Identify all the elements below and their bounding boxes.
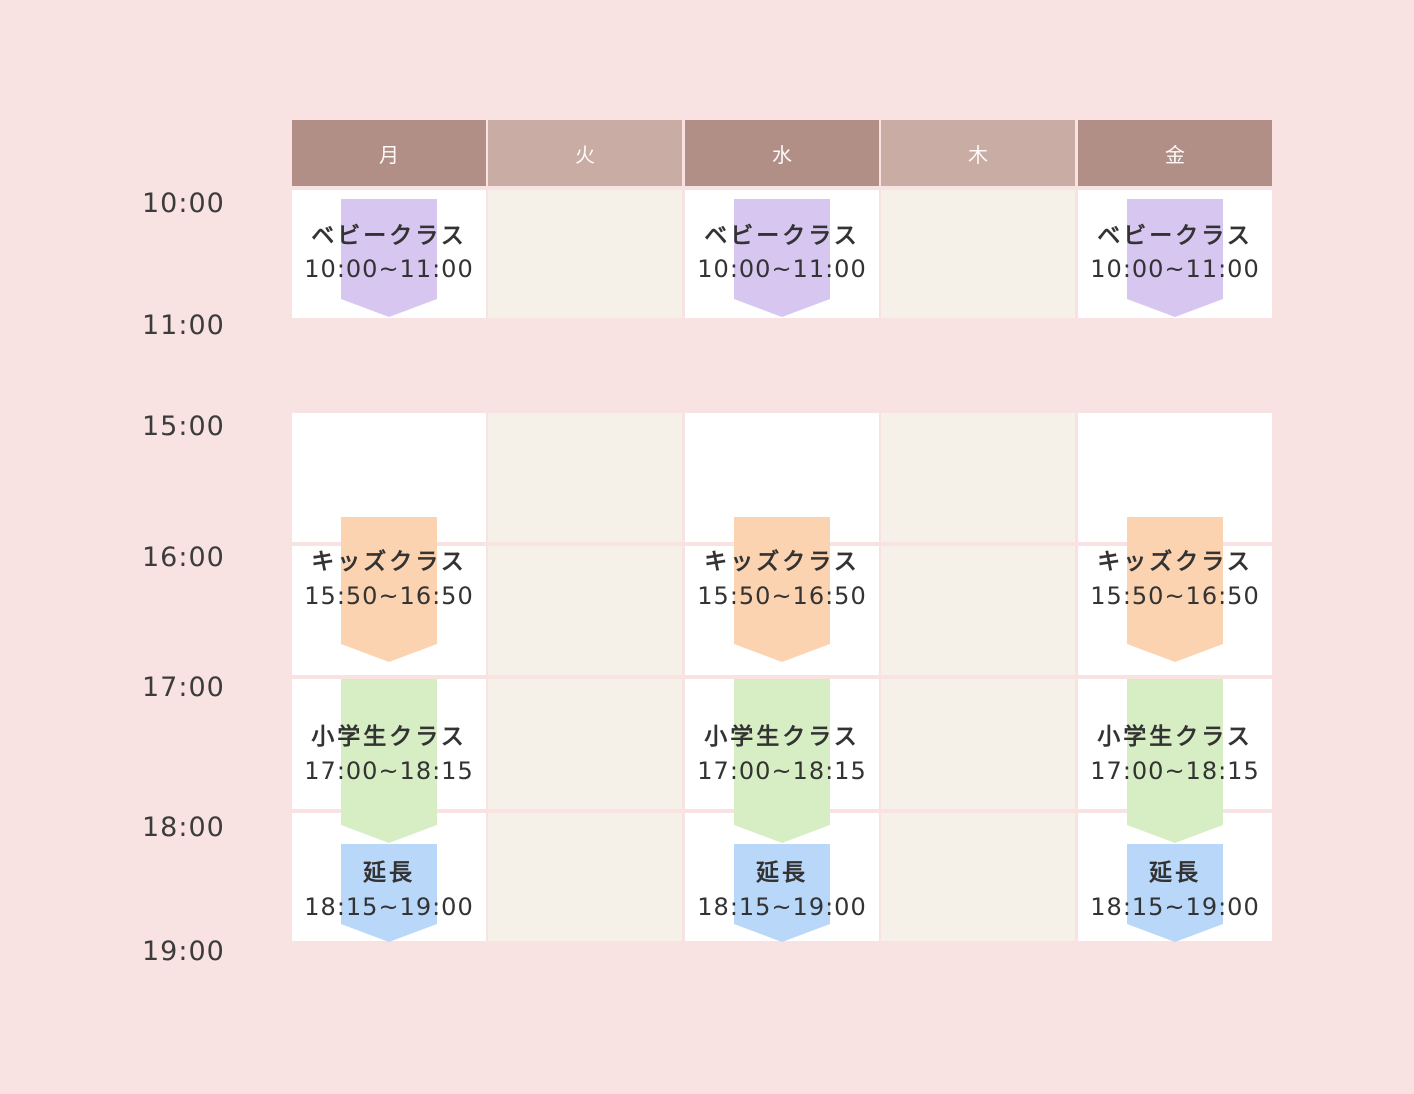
class-name-kids: キッズクラス bbox=[286, 547, 492, 577]
time-label-1900: 19:00 bbox=[142, 938, 252, 966]
class-time-extension: 18:15~19:00 bbox=[1072, 892, 1278, 922]
class-name-elementary: 小学生クラス bbox=[679, 722, 885, 752]
weekly-class-schedule: 10:00 11:00 15:00 16:00 17:00 18:00 19:0… bbox=[0, 0, 1414, 1094]
column-wednesday: ベビークラス 10:00~11:00 キッズクラス 15:50~16:50 小学… bbox=[685, 0, 879, 1094]
class-time-kids: 15:50~16:50 bbox=[286, 581, 492, 611]
class-time-kids: 15:50~16:50 bbox=[679, 581, 885, 611]
column-monday: ベビークラス 10:00~11:00 キッズクラス 15:50~16:50 小学… bbox=[292, 0, 486, 1094]
column-friday: ベビークラス 10:00~11:00 キッズクラス 15:50~16:50 小学… bbox=[1078, 0, 1272, 1094]
class-name-extension: 延長 bbox=[679, 858, 885, 888]
class-name-elementary: 小学生クラス bbox=[286, 722, 492, 752]
time-label-1000: 10:00 bbox=[142, 190, 252, 218]
schedule-cell bbox=[488, 546, 682, 675]
class-name-kids: キッズクラス bbox=[679, 547, 885, 577]
time-label-1700: 17:00 bbox=[142, 674, 252, 702]
time-label-1600: 16:00 bbox=[142, 544, 252, 572]
class-time-baby: 10:00~11:00 bbox=[1072, 254, 1278, 284]
class-time-extension: 18:15~19:00 bbox=[679, 892, 885, 922]
schedule-cell bbox=[488, 190, 682, 318]
class-time-elementary: 17:00~18:15 bbox=[286, 756, 492, 786]
column-thursday bbox=[881, 0, 1075, 1094]
schedule-cell bbox=[881, 813, 1075, 941]
class-name-extension: 延長 bbox=[286, 858, 492, 888]
class-name-kids: キッズクラス bbox=[1072, 547, 1278, 577]
time-label-1100: 11:00 bbox=[142, 312, 252, 340]
class-name-baby: ベビークラス bbox=[1072, 221, 1278, 251]
class-time-kids: 15:50~16:50 bbox=[1072, 581, 1278, 611]
schedule-cell bbox=[881, 546, 1075, 675]
class-time-baby: 10:00~11:00 bbox=[286, 254, 492, 284]
class-name-elementary: 小学生クラス bbox=[1072, 722, 1278, 752]
schedule-cell bbox=[881, 190, 1075, 318]
column-tuesday bbox=[488, 0, 682, 1094]
schedule-cell bbox=[488, 679, 682, 809]
class-name-baby: ベビークラス bbox=[286, 221, 492, 251]
class-time-elementary: 17:00~18:15 bbox=[1072, 756, 1278, 786]
class-time-extension: 18:15~19:00 bbox=[286, 892, 492, 922]
class-name-extension: 延長 bbox=[1072, 858, 1278, 888]
schedule-cell bbox=[881, 679, 1075, 809]
class-time-baby: 10:00~11:00 bbox=[679, 254, 885, 284]
class-name-baby: ベビークラス bbox=[679, 221, 885, 251]
schedule-cell bbox=[488, 413, 682, 542]
time-label-1800: 18:00 bbox=[142, 814, 252, 842]
schedule-cell bbox=[881, 413, 1075, 542]
schedule-cell bbox=[488, 813, 682, 941]
time-label-1500: 15:00 bbox=[142, 413, 252, 441]
class-time-elementary: 17:00~18:15 bbox=[679, 756, 885, 786]
